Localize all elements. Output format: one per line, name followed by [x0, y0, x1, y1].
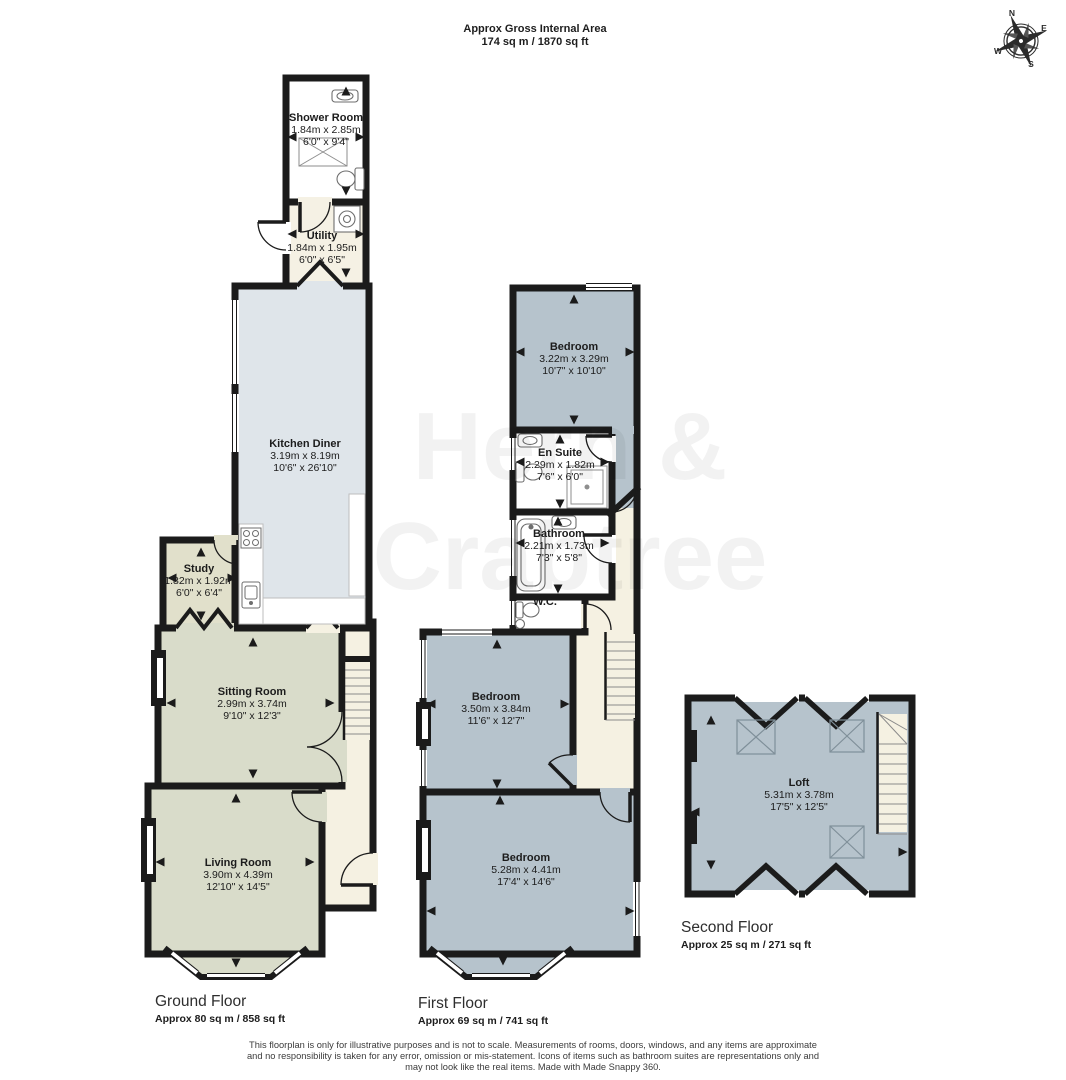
room-label-bedroom-3: Bedroom 5.28m x 4.41m 17'4" x 14'6": [491, 852, 560, 888]
compass-east-label: E: [1041, 23, 1047, 33]
sink-icon: [518, 434, 542, 447]
kitchen-sink-icon: [242, 582, 260, 608]
room-label-utility: Utility 1.84m x 1.95m 6'0" x 6'5": [287, 230, 356, 266]
washing-machine-icon: [334, 206, 360, 232]
room-label-bedroom-2: Bedroom 3.50m x 3.84m 11'6" x 12'7": [461, 691, 530, 727]
second-floor-label: Second Floor Approx 25 sq m / 271 sq ft: [681, 919, 811, 951]
compass-south-label: S: [1028, 59, 1034, 69]
room-label-en-suite: En Suite 2.29m x 1.82m 7'6" x 6'0": [525, 447, 594, 483]
room-label-loft: Loft 5.31m x 3.78m 17'5" x 12'5": [764, 777, 833, 813]
ground-floor-plan: [141, 78, 378, 978]
title-line1: Approx Gross Internal Area: [463, 23, 606, 36]
chimney-breast: [685, 730, 697, 762]
room-label-shower-room: Shower Room 1.84m x 2.85m 6'0" x 9'4": [289, 112, 363, 148]
staircase: [606, 632, 636, 720]
first-floor-label: First Floor Approx 69 sq m / 741 sq ft: [418, 995, 548, 1027]
page-title: Approx Gross Internal Area 174 sq m / 18…: [463, 23, 606, 48]
room-label-bathroom: Bathroom 2.21m x 1.73m 7'3" x 5'8": [524, 528, 593, 564]
room-label-wc: W.C.: [533, 596, 557, 608]
floorplan-page: Approx Gross Internal Area 174 sq m / 18…: [0, 0, 1066, 1080]
compass-north-label: N: [1009, 8, 1015, 18]
room-label-sitting-room: Sitting Room 2.99m x 3.74m 9'10" x 12'3": [217, 686, 286, 722]
room-label-kitchen-diner: Kitchen Diner 3.19m x 8.19m 10'6" x 26'1…: [269, 438, 341, 474]
staircase: [878, 712, 908, 834]
compass-icon: [985, 5, 1058, 78]
room-label-living-room: Living Room 3.90m x 4.39m 12'10" x 14'5": [203, 857, 272, 893]
staircase: [341, 656, 373, 740]
disclaimer-text: This floorplan is only for illustrative …: [123, 1040, 943, 1072]
room-label-bedroom-1: Bedroom 3.22m x 3.29m 10'7" x 10'10": [539, 341, 608, 377]
compass-west-label: W: [994, 46, 1002, 56]
ground-floor-label: Ground Floor Approx 80 sq m / 858 sq ft: [155, 993, 285, 1025]
title-line2: 174 sq m / 1870 sq ft: [463, 36, 606, 49]
door-arc: [258, 222, 286, 250]
room-label-study: Study 1.82m x 1.92m 6'0" x 6'4": [164, 563, 233, 599]
chimney-breast: [685, 812, 697, 844]
